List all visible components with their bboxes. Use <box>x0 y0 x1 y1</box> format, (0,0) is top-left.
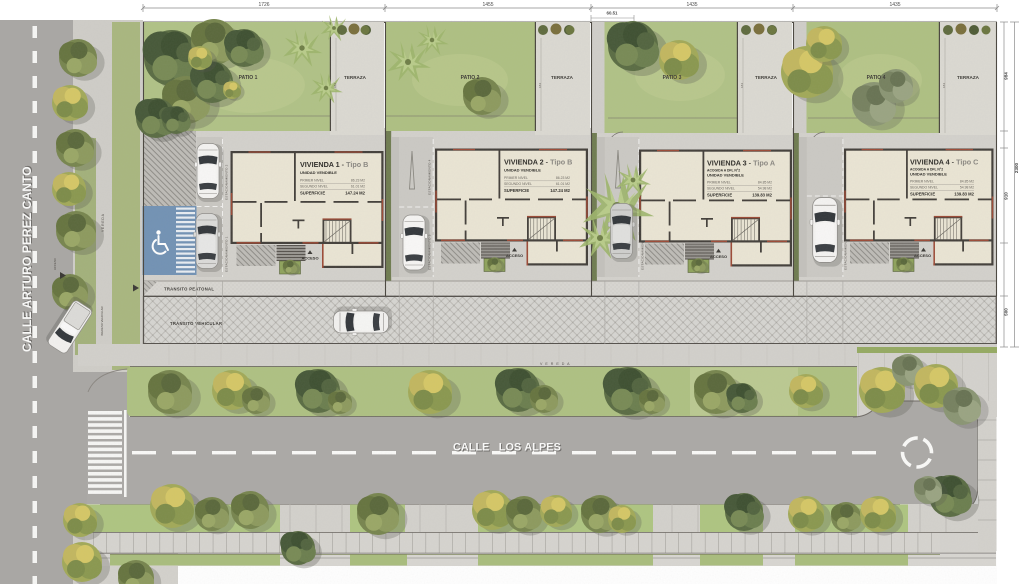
svg-text:184: 184 <box>538 83 542 88</box>
svg-text:2300: 2300 <box>1014 162 1019 173</box>
svg-text:60.51: 60.51 <box>607 11 619 16</box>
svg-text:1726: 1726 <box>258 2 269 8</box>
svg-text:1435: 1435 <box>889 2 900 8</box>
svg-text:1435: 1435 <box>686 2 697 8</box>
svg-text:184: 184 <box>740 83 744 88</box>
svg-text:VEREDA: VEREDA <box>101 213 105 232</box>
svg-text:184: 184 <box>333 83 337 88</box>
svg-text:984: 984 <box>1004 72 1009 80</box>
svg-text:910: 910 <box>1004 192 1009 200</box>
svg-text:1455: 1455 <box>482 2 493 8</box>
svg-text:184: 184 <box>942 83 946 88</box>
svg-text:500: 500 <box>1004 308 1009 316</box>
svg-text:ACCESO: ACCESO <box>53 257 57 270</box>
svg-text:INGRESO VEHICULAR: INGRESO VEHICULAR <box>100 306 104 336</box>
